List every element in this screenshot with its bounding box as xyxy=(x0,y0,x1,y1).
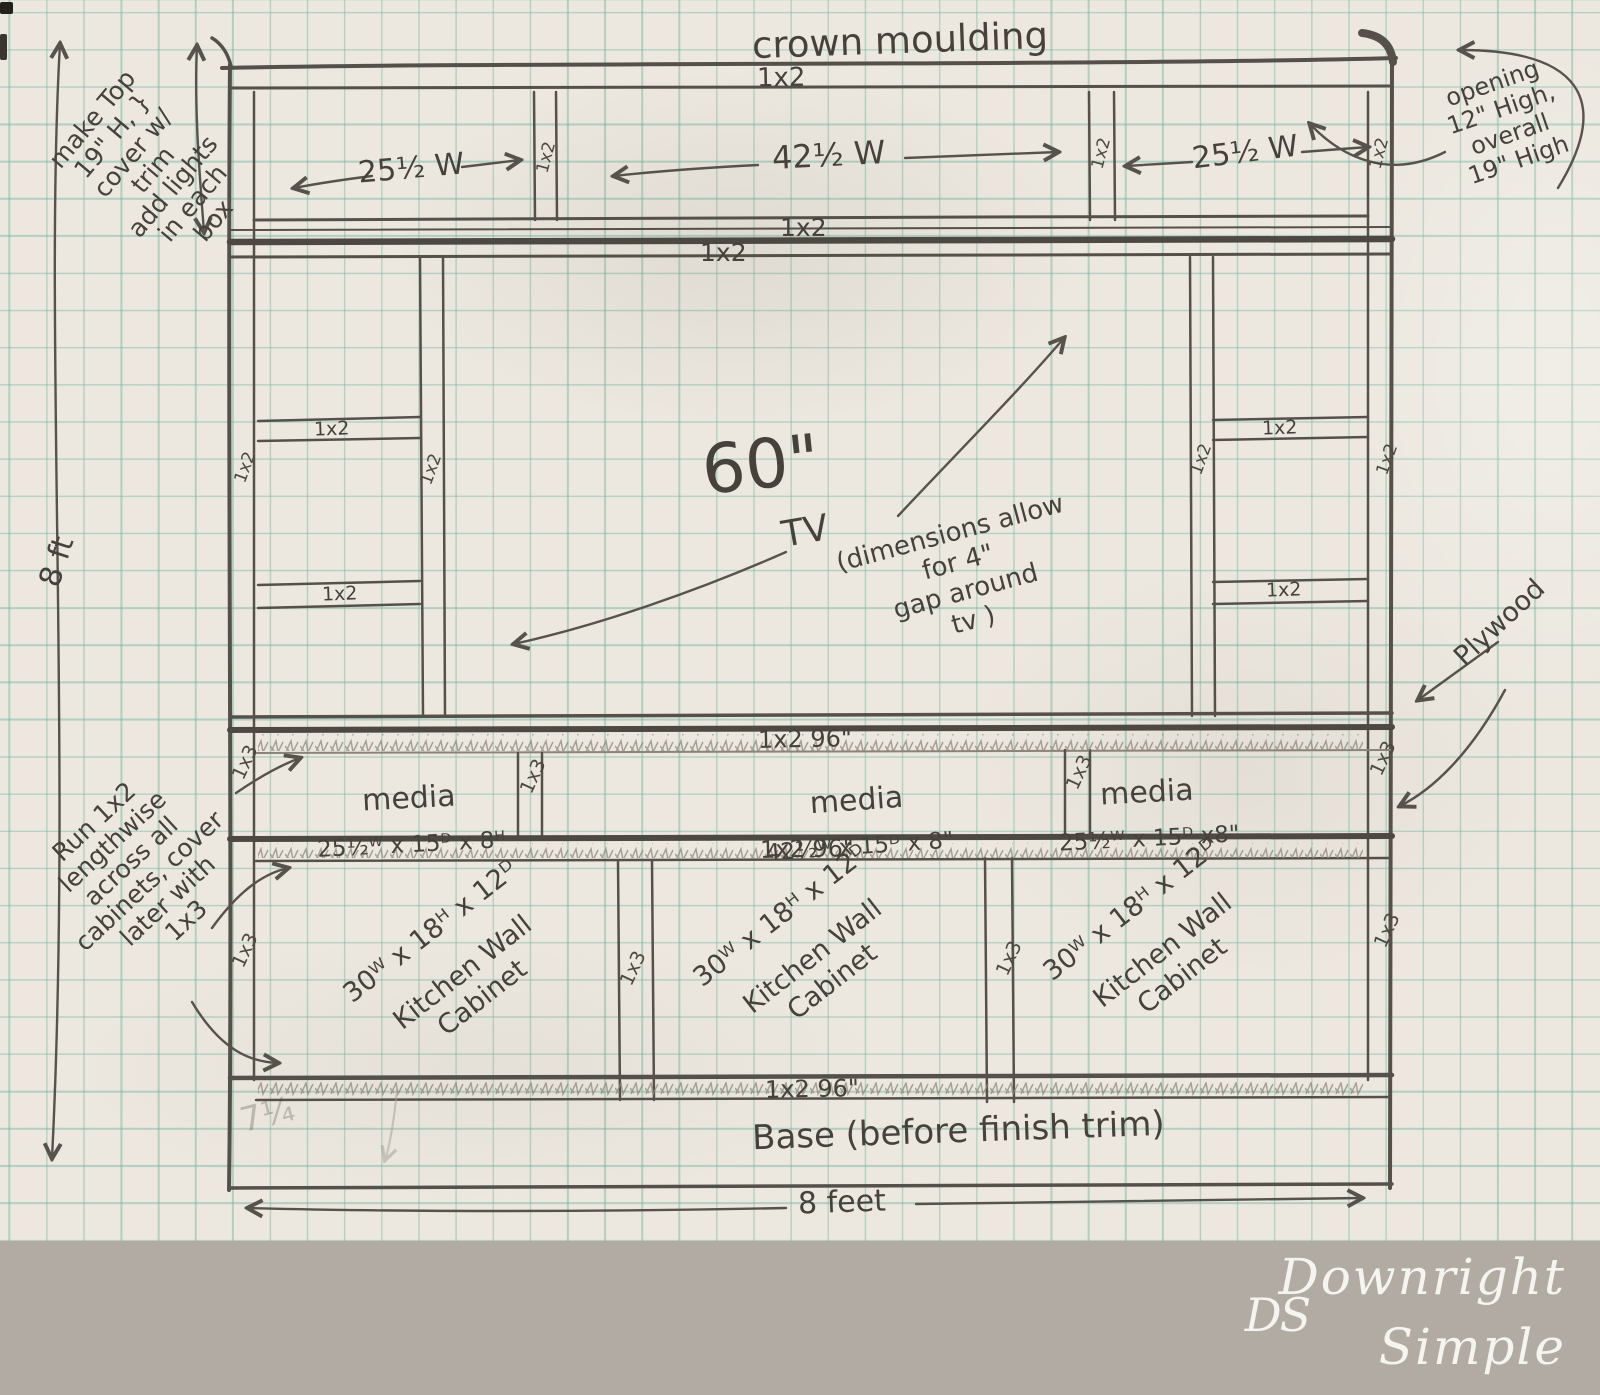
left-shelf-label-1: 1x2 xyxy=(314,418,350,440)
left-shelf-label-2: 1x2 xyxy=(322,583,358,605)
cabinet-rail-label-bottom: 1x2 96" xyxy=(765,1075,859,1104)
sketch-page: crown moulding 1x2 25½ W 42½ W 25½ W 1x2… xyxy=(0,0,1600,1395)
soffit-rail-label-1: 1x2 xyxy=(780,214,827,242)
media-name: media xyxy=(293,776,524,822)
media-rail-label-top: 1x2 96" xyxy=(758,725,852,754)
width-dim-center: 42½ W xyxy=(771,135,886,177)
right-shelf-label-2: 1x2 xyxy=(1266,579,1302,601)
top-rail-label: 1x2 xyxy=(757,64,806,94)
bottom-dim-label: 8 feet xyxy=(797,1184,886,1221)
media-name: media xyxy=(1026,770,1267,816)
tv-size-label: 60" xyxy=(698,422,823,510)
brand-name-line1: Downright xyxy=(1279,1248,1566,1306)
soffit-rail-label-2: 1x2 xyxy=(700,239,747,267)
right-shelf-label-1: 1x2 xyxy=(1262,417,1298,439)
tv-label: TV xyxy=(779,508,832,556)
brand-name-line2: Simple xyxy=(1379,1318,1566,1376)
